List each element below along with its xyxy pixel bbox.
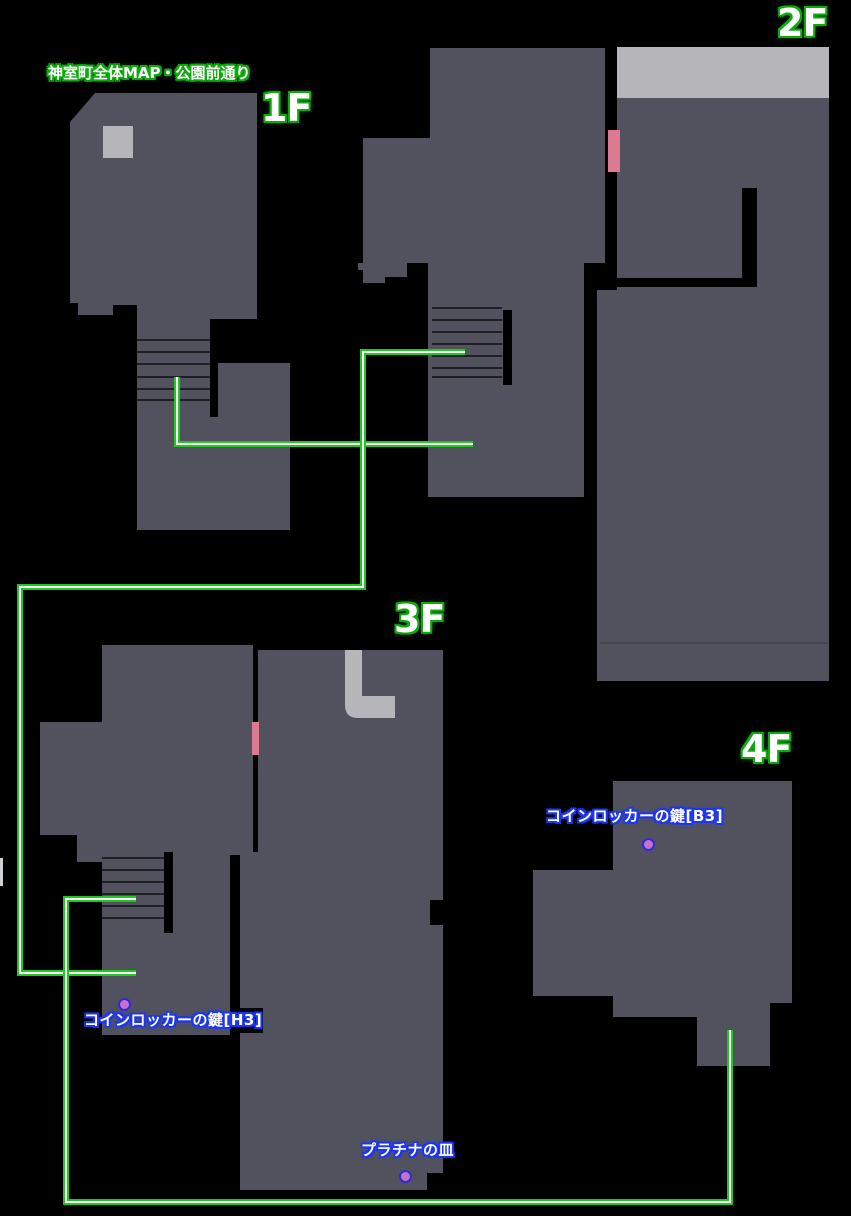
wall-2f-stairs: [503, 310, 512, 385]
floor-2f-left-step: [358, 263, 407, 283]
floor-2f-map: [358, 47, 829, 681]
floor-1f-side-room: [218, 363, 290, 401]
floor-3f-map: [40, 645, 443, 1190]
floor-1f-light-room: [103, 126, 133, 158]
floor-2f-corridor: [617, 47, 829, 98]
floor-3f-side-room: [173, 852, 230, 933]
floor-3f-right-building: [240, 650, 443, 1190]
wall-2f-inner-h: [617, 278, 757, 287]
item-label-b3: コインロッカーの鍵[B3]: [546, 809, 723, 824]
floor-3f-stair-corridor: [102, 852, 164, 933]
notch-3f-right: [430, 900, 443, 925]
wall-1f: [210, 378, 218, 417]
item-dot-h3: [118, 998, 131, 1011]
map-canvas: 神室町全体MAP・公園前通り 1F 2F 3F 4F コインロッカーの鍵[B3]…: [0, 0, 851, 1216]
door-marker-2f: [608, 130, 620, 172]
floor-2f-left-wide: [363, 138, 605, 263]
floor-label-1f: 1F: [261, 89, 311, 127]
item-label-h3: コインロッカーの鍵[H3]: [84, 1013, 262, 1028]
floor-1f-main-hall: [70, 93, 257, 319]
map-edge-mark: [0, 858, 3, 886]
floor-3f-left-main: [102, 645, 253, 855]
wall-3f-gap: [230, 890, 238, 1007]
item-dot-plate: [399, 1170, 412, 1183]
item-label-plate: プラチナの皿: [361, 1143, 454, 1158]
item-dot-b3: [642, 838, 655, 851]
floor-3f-left-wing: [40, 722, 102, 835]
floor-label-4f: 4F: [741, 730, 791, 768]
wall-3f-stairs: [164, 852, 173, 933]
floor-2f-left-top: [430, 48, 605, 140]
floor-label-2f: 2F: [777, 4, 827, 42]
floor-3f-connector: [77, 835, 102, 862]
wall-2f-inner-v: [742, 188, 757, 287]
floor-2f-right-building: [597, 98, 829, 681]
floor-1f-map: [70, 93, 290, 530]
map-title: 神室町全体MAP・公園前通り: [48, 66, 251, 81]
floor-1f-lower-room: [137, 401, 290, 530]
floor-label-3f: 3F: [394, 600, 444, 638]
door-marker-3f: [252, 722, 259, 755]
